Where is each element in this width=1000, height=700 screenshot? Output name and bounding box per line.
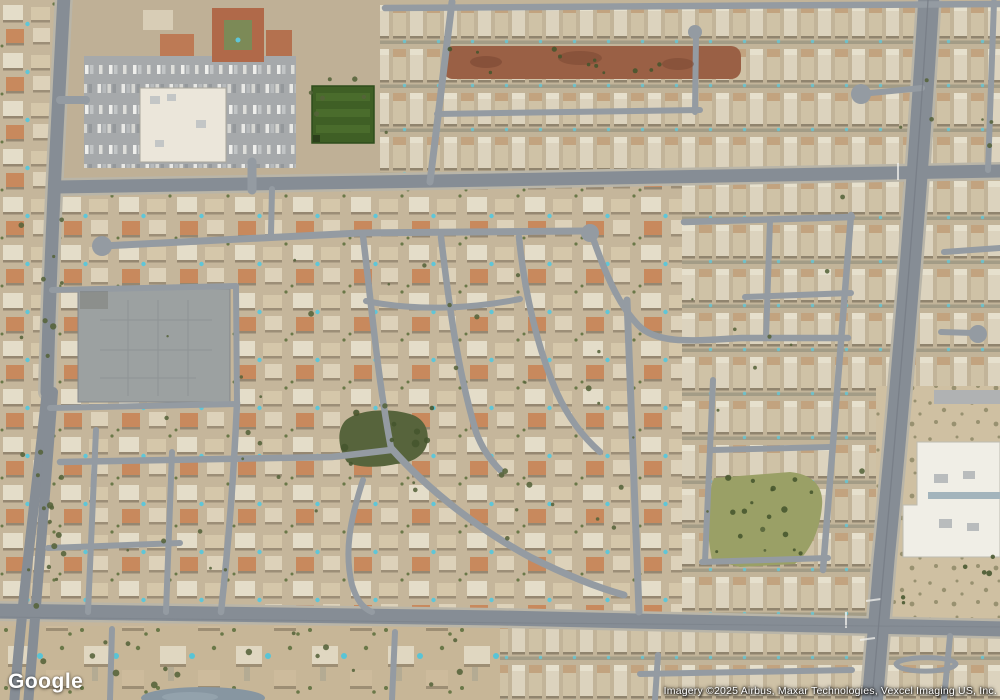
pad-stain <box>80 291 108 309</box>
tree <box>293 259 296 262</box>
school-strip <box>928 492 1000 499</box>
tree <box>730 510 735 515</box>
grid-2 <box>745 293 851 297</box>
tree <box>41 277 46 282</box>
tree <box>27 568 30 571</box>
tree <box>902 601 905 604</box>
tree <box>352 669 355 672</box>
tree <box>126 641 131 646</box>
tree <box>292 631 296 635</box>
tree <box>315 654 319 658</box>
cul-de-sac-5 <box>969 325 987 343</box>
tree <box>47 565 51 569</box>
tree <box>20 336 24 340</box>
tree <box>46 354 50 358</box>
tree <box>793 477 798 482</box>
tree <box>241 457 244 460</box>
tree <box>799 551 803 555</box>
tree <box>526 482 532 488</box>
tree <box>825 269 830 274</box>
tree <box>50 505 55 510</box>
tree <box>753 366 757 370</box>
tree <box>240 375 243 378</box>
tree <box>901 595 905 599</box>
dirt-blotch-1 <box>470 56 502 68</box>
tree <box>314 111 319 116</box>
school-unit-3 <box>939 519 952 528</box>
stub-east-2 <box>941 332 973 333</box>
tree <box>61 551 67 557</box>
tree <box>594 64 598 68</box>
tree <box>422 263 426 267</box>
dirt-blotch-2 <box>558 51 602 65</box>
tree <box>750 501 753 504</box>
tree <box>413 488 418 493</box>
tree <box>60 281 64 285</box>
tree <box>362 95 366 99</box>
school-unit-1 <box>934 474 948 483</box>
tree <box>258 441 263 446</box>
tree <box>981 118 984 121</box>
tree <box>198 529 203 534</box>
tree <box>59 218 64 223</box>
school-unit-2 <box>963 471 975 479</box>
street-upper-mid <box>437 110 700 114</box>
tree <box>925 78 929 82</box>
tree <box>593 59 596 62</box>
store-unit-4 <box>155 140 164 147</box>
cul-de-sac-1 <box>92 236 112 256</box>
tree <box>349 462 353 466</box>
school-building <box>903 442 1000 557</box>
tree <box>633 68 638 73</box>
tree <box>448 47 453 52</box>
pad-bottom-street <box>50 404 237 408</box>
tree <box>783 532 789 538</box>
tree <box>113 670 120 677</box>
tree <box>657 62 661 66</box>
tree <box>447 303 451 307</box>
school-unit-4 <box>967 523 979 531</box>
tree <box>597 350 600 353</box>
tree <box>328 77 332 81</box>
tree <box>166 335 168 337</box>
tree <box>414 429 420 435</box>
connector-top-left <box>271 189 272 234</box>
satellite-imagery[interactable] <box>0 0 1000 700</box>
tree <box>991 555 995 559</box>
tree <box>619 485 624 490</box>
field-stripe-3 <box>316 125 370 133</box>
tree <box>612 525 616 529</box>
tree <box>55 578 58 581</box>
tree <box>929 117 934 122</box>
street-upper-stub <box>695 36 696 112</box>
tree <box>36 473 40 477</box>
tree <box>323 644 329 650</box>
tree <box>33 603 39 609</box>
tree <box>986 570 992 576</box>
tree <box>767 515 772 520</box>
apartment-courtyard <box>224 20 252 50</box>
tree <box>52 255 55 258</box>
tree <box>103 640 107 644</box>
tree <box>770 488 773 491</box>
store-unit-2 <box>167 94 176 101</box>
tree <box>382 403 387 408</box>
tree <box>793 548 796 551</box>
brush-park <box>708 472 822 567</box>
map-viewport[interactable]: Google Imagery ©2025 Airbus, Maxar Techn… <box>0 0 1000 700</box>
cul-de-sac-4 <box>851 84 871 104</box>
field-stripe-2 <box>316 109 370 117</box>
tree <box>810 490 814 494</box>
tree <box>899 126 902 129</box>
tan-building <box>143 10 173 30</box>
tree <box>430 406 435 411</box>
tree <box>963 565 968 570</box>
tree <box>982 570 987 575</box>
tree <box>505 536 510 541</box>
tree <box>649 68 653 72</box>
tree <box>385 131 388 134</box>
tree <box>40 658 46 664</box>
tree <box>516 273 520 277</box>
tree <box>388 283 391 286</box>
tree <box>764 549 767 552</box>
tree <box>38 450 43 455</box>
tree <box>392 422 397 427</box>
tree <box>558 55 562 59</box>
bottom-stub-2 <box>392 632 395 700</box>
orange-roof-cluster <box>160 34 194 56</box>
bottom-h <box>640 670 852 674</box>
tree <box>43 318 48 323</box>
tree <box>50 323 56 329</box>
tree <box>246 430 251 435</box>
tree <box>751 479 755 483</box>
tree <box>315 509 318 512</box>
tree <box>453 638 457 642</box>
tree <box>742 509 747 514</box>
grid-inner-vertical <box>766 221 770 338</box>
tree <box>412 440 420 448</box>
tree <box>502 468 508 474</box>
tree <box>586 385 592 391</box>
tree <box>429 682 433 686</box>
tree <box>760 527 765 532</box>
tree <box>733 328 737 332</box>
tree <box>51 543 57 549</box>
tree <box>781 506 787 512</box>
tree <box>163 667 168 672</box>
tree <box>164 416 168 420</box>
tree <box>454 366 459 371</box>
store-unit-1 <box>150 96 160 104</box>
tree <box>412 481 415 484</box>
tree <box>587 63 591 67</box>
tree <box>524 381 527 384</box>
tree <box>151 682 158 689</box>
tree <box>161 539 166 544</box>
tree <box>990 120 994 124</box>
tree <box>515 508 518 511</box>
tree <box>352 76 357 81</box>
bottom-stub-1 <box>110 629 112 700</box>
tree <box>90 653 96 659</box>
stub-east-1 <box>944 248 1000 252</box>
tree <box>341 444 349 452</box>
tree <box>691 298 693 300</box>
tree <box>457 669 463 675</box>
grid-3 <box>712 447 830 450</box>
cul-de-sac-3 <box>688 25 702 39</box>
tree <box>56 532 62 538</box>
tree <box>353 410 359 416</box>
grid-4 <box>702 558 828 562</box>
tree <box>59 475 64 480</box>
bottom-v <box>655 655 658 700</box>
tree <box>725 475 731 481</box>
street-top-edge <box>385 4 1000 8</box>
tree <box>224 568 227 571</box>
pad-right-street <box>236 286 237 403</box>
tree <box>20 452 25 457</box>
tree <box>246 649 252 655</box>
tree <box>390 438 394 442</box>
tree <box>209 567 212 570</box>
tree <box>551 503 555 507</box>
tree <box>602 71 605 74</box>
tree <box>48 520 52 524</box>
tree <box>596 517 600 521</box>
tree <box>19 222 25 228</box>
tree <box>42 506 46 510</box>
store-unit-3 <box>196 120 206 128</box>
tree <box>790 344 793 347</box>
cul-de-sac-2 <box>581 224 599 242</box>
tree <box>392 427 395 430</box>
apartment-wing <box>266 30 292 56</box>
tree <box>277 475 281 479</box>
tree <box>320 96 325 101</box>
pad-top-street <box>52 286 236 290</box>
school-drive <box>934 390 1000 404</box>
tree <box>174 672 180 678</box>
tree <box>717 409 720 412</box>
imagery-attribution: Imagery ©2025 Airbus, Maxar Technologies… <box>664 685 997 697</box>
tree <box>597 402 600 405</box>
complex-pool <box>236 38 241 43</box>
tree <box>424 437 430 443</box>
tree <box>738 534 743 539</box>
google-logo[interactable]: Google <box>8 670 83 694</box>
tree <box>309 91 313 95</box>
tree <box>859 468 865 474</box>
tree <box>632 436 634 438</box>
tree <box>552 47 557 52</box>
tree <box>489 71 492 74</box>
tree <box>308 311 314 317</box>
tree <box>706 510 709 513</box>
tree <box>126 549 129 552</box>
tree <box>476 51 479 54</box>
dirt-blotch-3 <box>662 58 694 70</box>
tree <box>474 314 479 319</box>
tree <box>259 395 262 398</box>
tree <box>987 143 992 148</box>
tree <box>767 335 771 339</box>
field-corner <box>313 135 320 142</box>
tree <box>715 550 718 553</box>
tree <box>840 195 845 200</box>
